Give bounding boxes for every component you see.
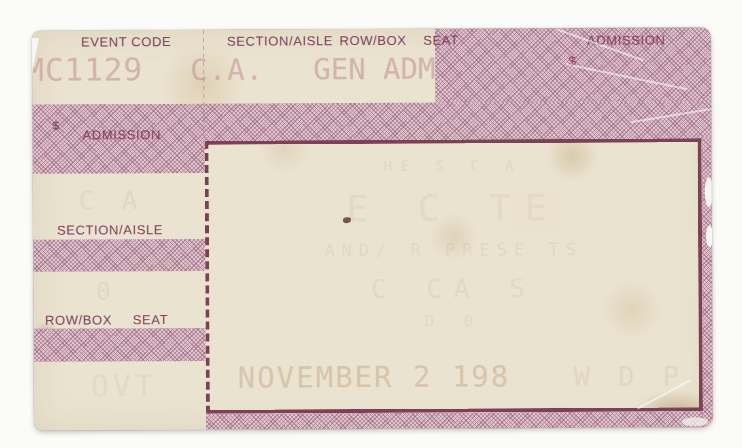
ghost-panel-line3: AND/ R PRESE TS bbox=[209, 238, 698, 261]
pink-band-rowbox bbox=[34, 328, 206, 362]
torn-edge-chip bbox=[706, 225, 713, 247]
torn-edge-chip bbox=[705, 177, 713, 207]
label-section-aisle-left: SECTION/AISLE bbox=[57, 222, 161, 238]
stamp-date-faint: W D P bbox=[574, 360, 685, 392]
ghost-row-value: 0 bbox=[63, 277, 143, 305]
stamp-event-code: MC1129 bbox=[32, 51, 143, 88]
pink-band-section bbox=[33, 239, 205, 272]
ghost-panel-line4: C CA S bbox=[209, 272, 698, 305]
pink-strip-bottom bbox=[206, 411, 713, 430]
label-section-aisle-top: SECTION/AISLE bbox=[224, 33, 336, 49]
label-seat-left: SEAT bbox=[129, 312, 171, 327]
stamp-date: NOVEMBER 2 198 bbox=[238, 359, 511, 394]
label-admission-left: ADMISSION bbox=[82, 127, 160, 142]
label-row-box-top: ROW/BOX bbox=[337, 33, 409, 48]
label-seat-top: SEAT bbox=[420, 33, 462, 48]
ghost-bottom-left: OVT bbox=[64, 368, 184, 404]
dollar-sign-left: $ bbox=[52, 119, 59, 133]
label-row-box-left: ROW/BOX bbox=[43, 312, 113, 327]
ghost-panel-line2: E C TE bbox=[209, 186, 698, 230]
stamp-seat-class: GEN ADM bbox=[313, 52, 435, 87]
ghost-panel-line1: HE S C A bbox=[209, 156, 698, 175]
ticket: EVENT CODE SECTION/AISLE ROW/BOX SEAT AD… bbox=[32, 27, 713, 431]
stamp-section-aisle: C.A. bbox=[190, 53, 264, 87]
ghost-section-value: C A bbox=[51, 185, 171, 216]
label-event-code: EVENT CODE bbox=[56, 34, 196, 50]
ghost-panel-line5: D 0 bbox=[209, 310, 698, 332]
main-panel-border: HE S C A E C TE AND/ R PRESE TS C CA S D… bbox=[205, 138, 703, 414]
torn-edge-chip bbox=[682, 417, 708, 426]
